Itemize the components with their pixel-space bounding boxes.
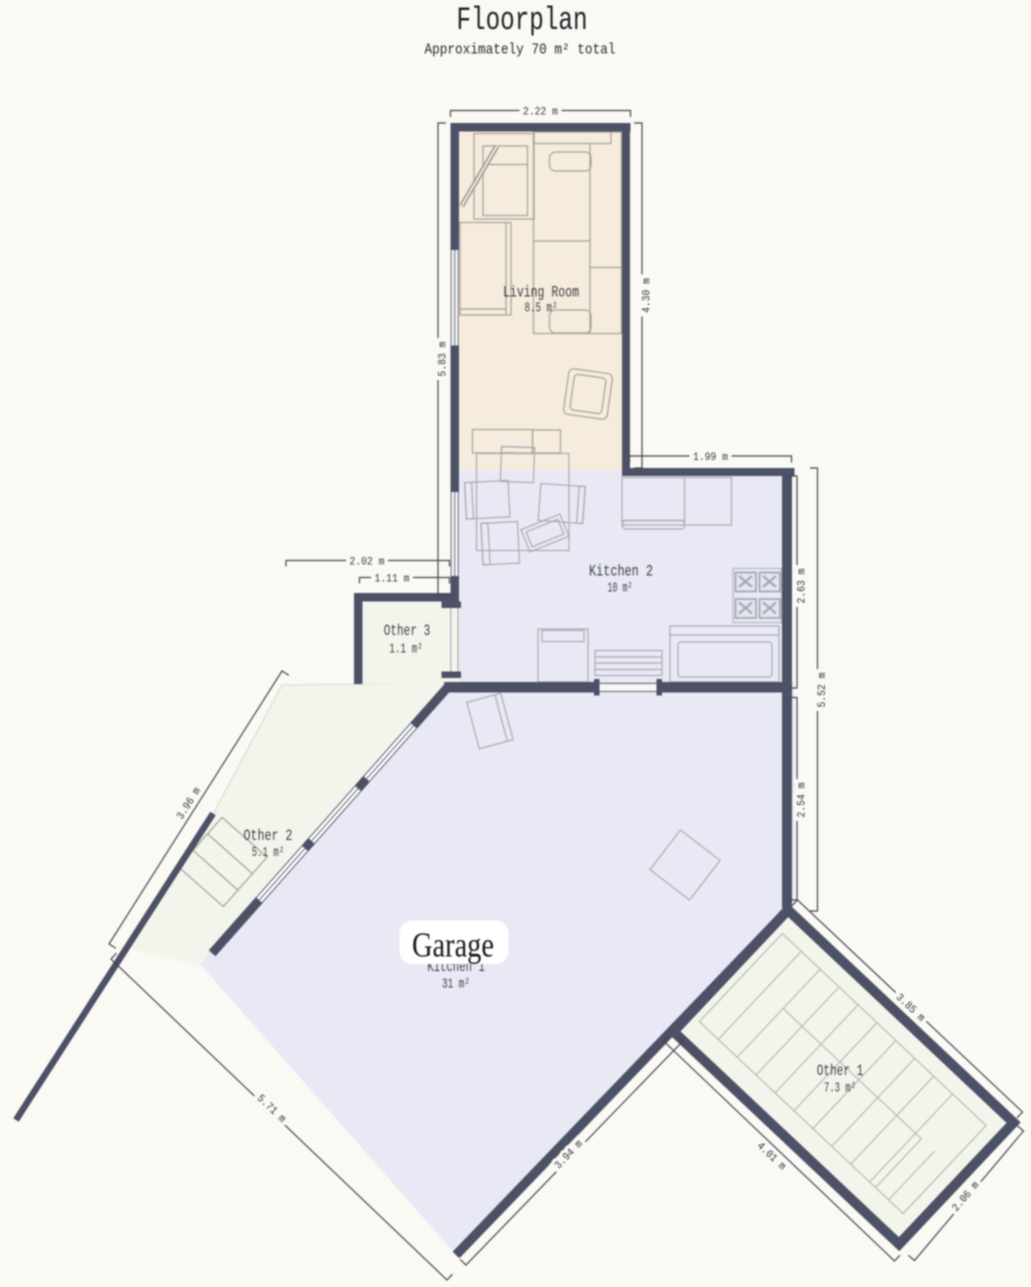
svg-text:2.54 m: 2.54 m (797, 782, 809, 817)
svg-text:Approximately 70 m² total: Approximately 70 m² total (425, 43, 616, 59)
svg-text:1.1 m²: 1.1 m² (389, 643, 423, 658)
svg-text:Garage: Garage (412, 926, 494, 965)
svg-text:5.1 m²: 5.1 m² (252, 846, 285, 861)
svg-text:Floorplan: Floorplan (457, 2, 588, 39)
svg-text:1.11 m: 1.11 m (375, 574, 410, 586)
svg-text:Other 1: Other 1 (817, 1062, 864, 1080)
svg-text:2.63 m: 2.63 m (797, 568, 809, 603)
svg-text:7.3 m²: 7.3 m² (824, 1082, 856, 1097)
svg-text:Other 3: Other 3 (384, 622, 431, 640)
svg-text:10 m²: 10 m² (608, 582, 633, 597)
svg-text:5.52 m: 5.52 m (817, 672, 829, 707)
svg-text:31 m²: 31 m² (442, 978, 470, 993)
svg-text:5.83 m: 5.83 m (438, 341, 450, 376)
svg-text:Other 2: Other 2 (244, 827, 293, 845)
svg-text:2.22 m: 2.22 m (523, 107, 558, 119)
svg-text:4.30 m: 4.30 m (642, 278, 654, 313)
svg-text:8.5 m²: 8.5 m² (525, 302, 558, 317)
svg-text:2.02 m: 2.02 m (350, 557, 385, 569)
svg-text:1.99 m: 1.99 m (693, 452, 728, 464)
svg-text:Kitchen 2: Kitchen 2 (589, 563, 653, 581)
svg-text:Living Room: Living Room (503, 284, 579, 302)
